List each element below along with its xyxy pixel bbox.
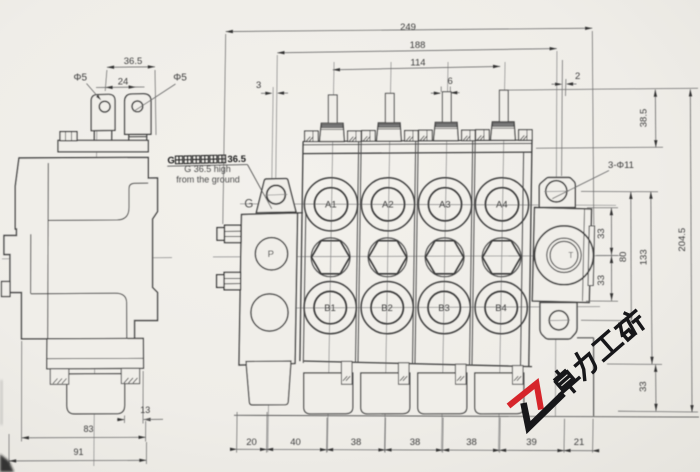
svg-text:G 36.5 high: G 36.5 high (184, 164, 231, 174)
svg-text:13: 13 (140, 405, 150, 415)
svg-text:A2: A2 (382, 200, 394, 211)
svg-text:3-Φ11: 3-Φ11 (608, 160, 634, 171)
svg-text:G: G (167, 155, 175, 166)
svg-text:91: 91 (73, 447, 83, 457)
svg-text:38: 38 (351, 437, 362, 448)
svg-text:39: 39 (526, 437, 537, 448)
svg-text:2: 2 (575, 71, 580, 82)
svg-text:A1: A1 (325, 200, 337, 211)
svg-text:B3: B3 (438, 303, 450, 314)
svg-text:P: P (268, 249, 274, 260)
svg-text:from the ground: from the ground (176, 175, 240, 185)
svg-text:40: 40 (290, 437, 301, 448)
svg-text:114: 114 (410, 58, 425, 69)
svg-text:38: 38 (410, 437, 421, 448)
svg-text:33: 33 (638, 381, 649, 392)
svg-text:6: 6 (448, 76, 453, 87)
svg-text:20: 20 (246, 437, 257, 448)
svg-text:38: 38 (466, 437, 477, 448)
svg-text:133: 133 (638, 249, 649, 265)
svg-text:A3: A3 (439, 200, 451, 211)
svg-text:83: 83 (83, 424, 93, 434)
svg-text:B4: B4 (495, 303, 507, 314)
svg-text:Φ5: Φ5 (173, 73, 187, 84)
svg-text:B2: B2 (381, 303, 393, 314)
svg-text:80: 80 (618, 252, 629, 263)
svg-text:33: 33 (596, 228, 607, 239)
svg-text:3: 3 (256, 80, 261, 91)
svg-text:249: 249 (400, 22, 416, 33)
svg-text:188: 188 (410, 40, 426, 51)
svg-text:38.5: 38.5 (638, 109, 649, 128)
svg-text:B1: B1 (324, 303, 336, 314)
svg-text:T: T (568, 251, 573, 260)
svg-text:Φ5: Φ5 (74, 73, 88, 84)
svg-text:36.5: 36.5 (124, 56, 143, 67)
svg-text:21: 21 (574, 437, 585, 448)
svg-text:A4: A4 (496, 200, 508, 211)
svg-text:24: 24 (118, 77, 129, 88)
svg-text:33: 33 (596, 275, 607, 286)
svg-text:G: G (244, 198, 253, 210)
svg-text:204.5: 204.5 (677, 228, 688, 252)
